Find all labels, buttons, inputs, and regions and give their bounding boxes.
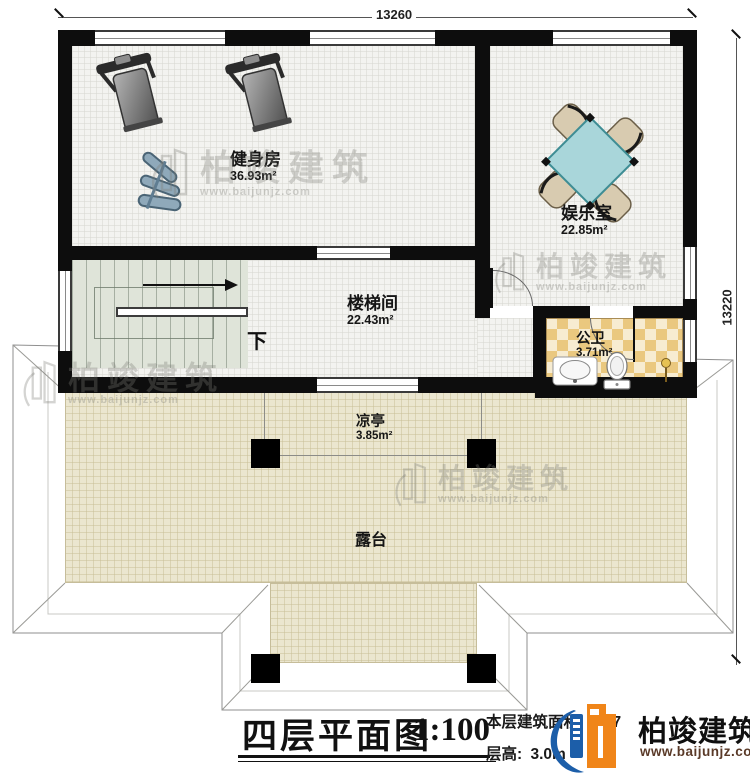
pavilion-label: 凉亭 3.85m² [356, 414, 392, 443]
wall-divider-gym-entertainment [475, 30, 490, 318]
gym-label: 健身房 36.93m² [230, 150, 281, 183]
brand-website: www.baijunjz.com [640, 744, 750, 759]
title-underline-thin [238, 761, 496, 762]
terrace-label: 露台 [355, 532, 387, 550]
wall-bathroom-top-left [533, 306, 590, 318]
pavilion-column [467, 439, 496, 468]
bathroom-name: 公卫 [576, 331, 612, 347]
shower-stem [665, 368, 667, 382]
sink-icon [552, 356, 598, 386]
floor-plan: 健身房 36.93m² 娱乐室 22.85m² 楼梯间 22.43m² 公卫 3… [0, 0, 750, 784]
pavilion-column [251, 439, 280, 468]
terrace-floor-extension [270, 583, 477, 663]
pavilion-post-line [481, 392, 482, 440]
entertainment-label: 娱乐室 22.85m² [561, 204, 612, 237]
pavilion-area: 3.85m² [356, 430, 392, 443]
bathroom-area: 3.71m² [576, 347, 612, 360]
pavilion-column [467, 654, 496, 683]
terrace-name: 露台 [355, 532, 387, 550]
stair-direction-line [143, 284, 225, 286]
stairwell-area: 22.43m² [347, 313, 398, 327]
wall-gym-bottom-left [58, 246, 317, 260]
pavilion-post-line [264, 392, 265, 440]
corridor-floor [477, 318, 535, 385]
stairwell-name: 楼梯间 [347, 294, 398, 313]
shower-head-icon [661, 358, 671, 368]
window-gym-2 [310, 30, 435, 46]
pavilion-column [251, 654, 280, 683]
dimension-line-right [736, 38, 737, 665]
window-entertainment-right [683, 247, 697, 299]
window-stairwell-left [58, 271, 72, 351]
wall-gym-bottom-right [390, 246, 475, 260]
window-bathroom-right [683, 320, 697, 362]
gym-area: 36.93m² [230, 169, 281, 183]
plan-scale: 1:100 [413, 712, 490, 749]
gym-name: 健身房 [230, 150, 281, 169]
plan-title: 四层平面图 [242, 708, 432, 759]
pavilion-name: 凉亭 [356, 414, 392, 430]
dimension-right-value: 13220 [720, 273, 735, 343]
window-entertainment-top [553, 30, 670, 46]
entertainment-name: 娱乐室 [561, 204, 612, 223]
entertainment-area: 22.85m² [561, 223, 612, 237]
floor-height-label: 层高: [486, 746, 522, 763]
pavilion-beam-line [264, 455, 482, 456]
bathroom-label: 公卫 3.71m² [576, 331, 612, 360]
stairs-down-label: 下 [247, 325, 267, 354]
brand-logo-icon [540, 698, 636, 784]
wall-bathroom-top-right [633, 306, 683, 318]
staircase-handrail [116, 307, 248, 317]
opening-gym-stairwell [317, 246, 390, 260]
title-underline-thick [238, 755, 490, 758]
wall-bathroom-left [533, 318, 546, 385]
window-stairwell-bottom [317, 377, 418, 393]
dumbbell-rack-icon [124, 149, 198, 223]
stairwell-label: 楼梯间 22.43m² [347, 294, 398, 327]
stair-direction-arrow-icon [225, 279, 238, 291]
dimension-top-value: 13260 [372, 7, 416, 22]
window-gym-1 [95, 30, 225, 46]
